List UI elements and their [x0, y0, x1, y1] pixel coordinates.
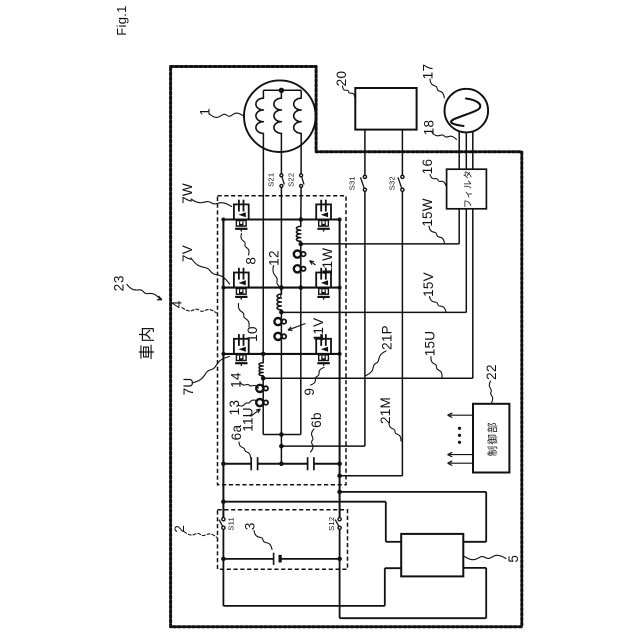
svg-text:7W: 7W: [180, 183, 195, 204]
svg-text:5: 5: [506, 554, 521, 562]
svg-text:15U: 15U: [422, 331, 437, 356]
svg-text:3: 3: [242, 522, 257, 530]
svg-text:S32: S32: [388, 176, 397, 190]
svg-text:S11: S11: [227, 517, 236, 531]
svg-text:Fig.1: Fig.1: [114, 5, 129, 35]
svg-text:14: 14: [228, 372, 243, 388]
svg-text:制御部: 制御部: [486, 421, 499, 456]
svg-text:23: 23: [111, 275, 126, 292]
svg-text:S22: S22: [286, 173, 295, 187]
svg-text:15V: 15V: [421, 272, 436, 297]
svg-text:11W: 11W: [320, 248, 335, 275]
svg-text:9: 9: [302, 387, 317, 395]
svg-text:6b: 6b: [309, 412, 324, 428]
svg-text:18: 18: [421, 120, 436, 136]
svg-text:6a: 6a: [229, 425, 244, 441]
svg-text:フィルタ: フィルタ: [463, 170, 473, 209]
svg-text:S31: S31: [348, 176, 357, 190]
svg-text:21P: 21P: [379, 325, 394, 350]
svg-text:20: 20: [334, 71, 349, 87]
svg-text:22: 22: [484, 364, 499, 380]
svg-text:15W: 15W: [420, 198, 435, 226]
svg-text:11V: 11V: [311, 318, 326, 342]
svg-text:16: 16: [420, 159, 435, 175]
svg-text:4: 4: [169, 300, 184, 308]
svg-text:車内: 車内: [138, 325, 156, 360]
svg-text:21M: 21M: [378, 397, 393, 424]
svg-text:8: 8: [243, 256, 258, 264]
svg-text:S21: S21: [266, 173, 275, 187]
svg-text:17: 17: [420, 64, 435, 80]
svg-text:S12: S12: [327, 517, 336, 531]
svg-text:7U: 7U: [181, 378, 196, 396]
svg-text:10: 10: [245, 326, 260, 342]
svg-text:12: 12: [266, 250, 281, 266]
